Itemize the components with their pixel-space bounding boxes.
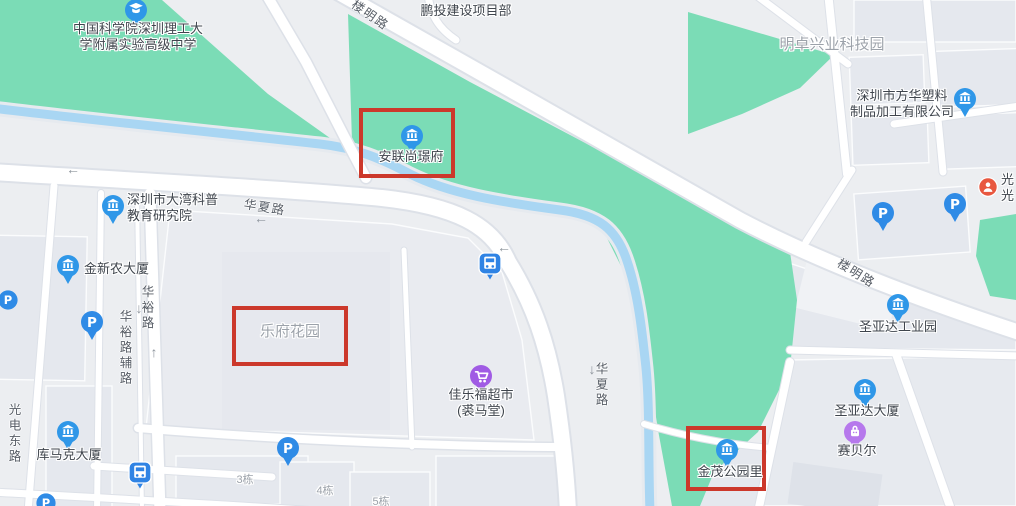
parking-grid-west-pin-p-icon[interactable] — [870, 200, 896, 232]
arrow-down-huayu-label: ↓ — [136, 301, 143, 315]
parking-grid-east-pin-p-icon[interactable] — [942, 191, 968, 223]
fanghua-plastics-pin-building-icon[interactable] — [952, 86, 978, 118]
parking-lefu-south-pin-p-icon[interactable] — [275, 435, 301, 467]
lefu-huayuan-label: 乐府花园 — [260, 324, 320, 340]
kumake-tower-label[interactable]: 库马克大厦 — [36, 447, 101, 463]
arrow-down-huaxia-v: ↓ — [589, 362, 596, 376]
jinxinnong-tower-label[interactable]: 金新农大厦 — [84, 261, 149, 277]
fanghua-plastics-label[interactable]: 深圳市方华塑料制品加工有限公司 — [850, 88, 954, 120]
jinmao-gongyuanli-label[interactable]: 金茂公园里 — [697, 464, 762, 480]
guangdian-east-road-label: 光电东路 — [5, 403, 24, 465]
bus-stop-south-bus-icon[interactable] — [128, 461, 152, 489]
shengyada-tower-label[interactable]: 圣亚达大厦 — [834, 403, 899, 419]
jialefu-supermarket-label[interactable]: 佳乐福超市(裘马堂) — [448, 387, 513, 419]
pengtou-project-label[interactable]: 鹏投建设项目部 — [420, 3, 511, 19]
mingzhuo-tech-park-label: 明卓兴业科技园 — [779, 37, 884, 53]
shengyada-industrial-park-label[interactable]: 圣亚达工业园 — [859, 319, 937, 335]
saibeier-label[interactable]: 赛贝尔 — [837, 443, 876, 459]
arrow-up-huayu: ↑ — [151, 345, 158, 359]
dawan-kepu-institute-pin-building-icon[interactable] — [100, 193, 126, 225]
anlian-shangjingfu-label[interactable]: 安联尚璟府 — [378, 149, 443, 165]
bus-stop-huaxia-bus-icon[interactable] — [478, 252, 502, 280]
parking-left-edge-circle-p-icon[interactable] — [0, 290, 18, 310]
building-4-label: 4栋 — [316, 483, 333, 499]
guang-clipped-circle-alert-icon[interactable] — [978, 177, 998, 197]
guang-clipped-label[interactable]: 光光 — [1001, 172, 1014, 204]
dawan-kepu-institute-label[interactable]: 深圳市大湾科普教育研究院 — [127, 192, 218, 224]
building-5-label: 5栋 — [372, 494, 389, 506]
arrow-left-huaxia-label: ← — [254, 211, 268, 225]
building-3-label: 3栋 — [236, 472, 253, 488]
jinxinnong-tower-pin-building-icon[interactable] — [55, 253, 81, 285]
parking-bottom-left-circle-p-icon[interactable] — [36, 493, 56, 506]
huayu-frontage-road-label: 华裕路辅路 — [116, 309, 135, 387]
school-shenzhen-ligong-label[interactable]: 中国科学院深圳理工大学附属实验高级中学 — [73, 21, 203, 53]
arrow-left-huaxia-w: ← — [66, 162, 80, 176]
map-canvas[interactable]: P P — [0, 0, 1016, 506]
parking-huayu-pin-p-icon[interactable] — [79, 309, 105, 341]
